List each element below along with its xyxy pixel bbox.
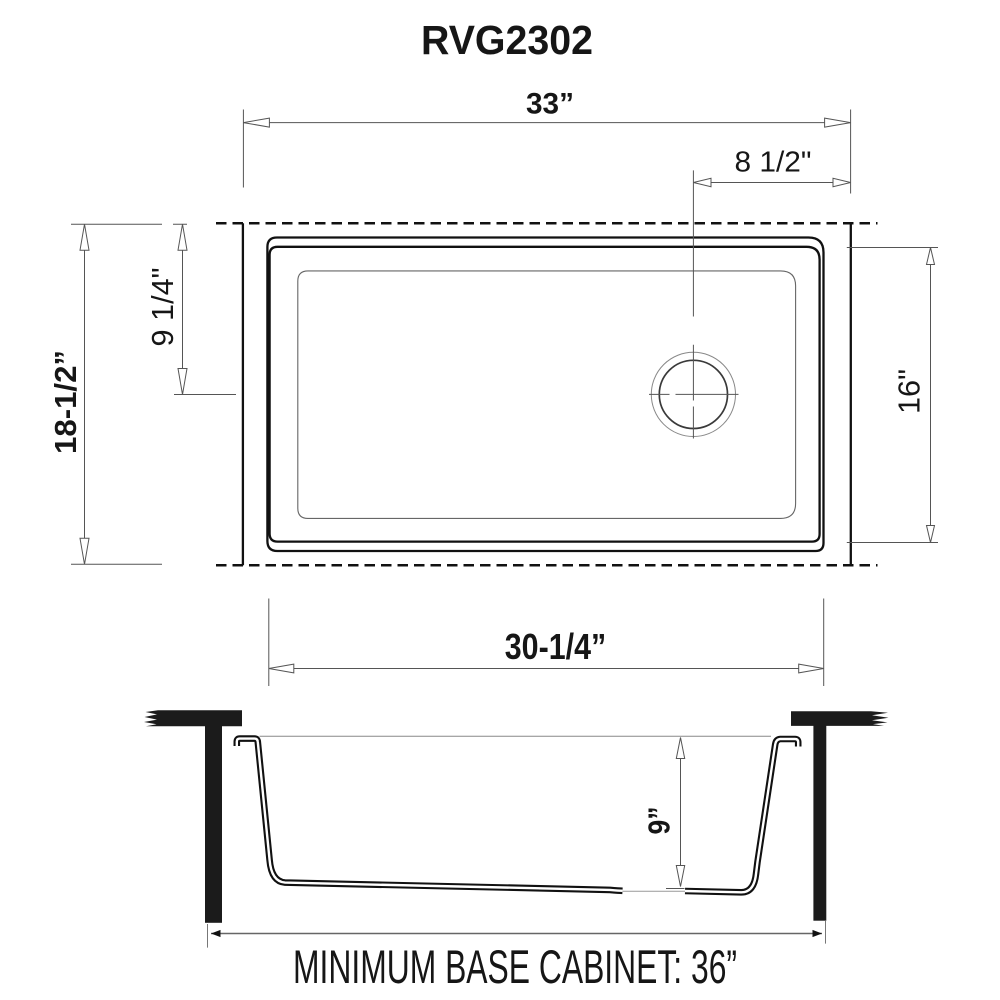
svg-text:16": 16" (892, 369, 927, 414)
svg-text:MINIMUM BASE CABINET: 36”: MINIMUM BASE CABINET: 36” (293, 940, 737, 993)
svg-text:30-1/4”: 30-1/4” (505, 626, 607, 667)
svg-text:9”: 9” (642, 807, 677, 835)
svg-text:9 1/4": 9 1/4" (145, 268, 180, 347)
svg-text:8 1/2": 8 1/2" (735, 147, 812, 179)
svg-text:RVG2302: RVG2302 (421, 17, 593, 63)
svg-text:18-1/2”: 18-1/2” (49, 350, 83, 454)
svg-text:33”: 33” (526, 87, 574, 120)
